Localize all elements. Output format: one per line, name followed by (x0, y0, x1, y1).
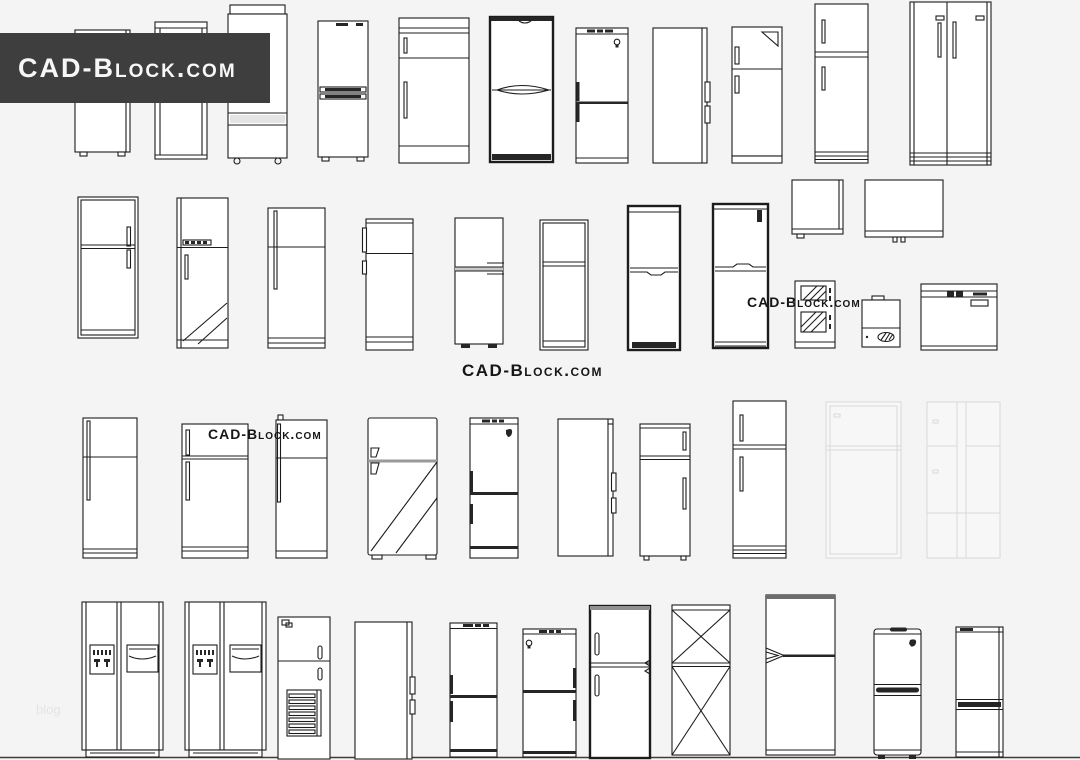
fridge-top-freezer-folded-corner (732, 27, 782, 163)
fridge-two-box-thick (590, 606, 650, 758)
watermark-row2-right: CAD-Block.com (747, 294, 861, 310)
wide-box-fridge (865, 180, 943, 242)
fridge-side-view-hinged (558, 419, 616, 556)
fridge-double-frame (540, 220, 588, 350)
faint-top-freezer (826, 402, 901, 558)
fridge-side-view-tall (355, 622, 415, 759)
chest-freezer (921, 284, 997, 350)
fridge-grille-left-handles (450, 623, 497, 757)
fridge-grille-bulb-bottom-freezer (523, 629, 576, 757)
fridge-bottom-freezer-bars (318, 21, 368, 161)
fridge-left-tab-handles (363, 219, 414, 350)
fridge-single-door-band (399, 18, 469, 163)
fridge-long-handle-top-freezer (268, 208, 325, 348)
side-by-side-dispenser-b (185, 602, 266, 757)
fridge-thick-notch-divider (628, 206, 680, 350)
fridge-side-by-side-top (910, 2, 991, 165)
fridge-grille-bird-bottom-freezer (470, 418, 518, 558)
fridge-side-view-panel (653, 28, 710, 163)
fridge-gray-divider (455, 218, 504, 348)
hatched-panel-unit (795, 281, 835, 348)
site-logo-text: CAD-Block.com (18, 53, 237, 84)
blog-link[interactable]: blog (36, 702, 61, 717)
cad-blocks-preview-page: CAD-Block.com CAD-Block.com CAD-Block.co… (0, 0, 1080, 760)
fridge-dark-band-bottom-freezer (956, 627, 1003, 757)
fridge-striped-base (733, 401, 786, 558)
fridge-louver-grille (278, 617, 330, 759)
compressor-unit (862, 296, 900, 347)
fridge-grille-bulb (576, 28, 628, 163)
mini-box-fridge (792, 180, 843, 238)
fridge-curved-band (874, 628, 921, 760)
fridge-two-handle-top-freezer (182, 424, 248, 558)
fridge-double-border-top-freezer (78, 197, 138, 338)
site-logo-banner[interactable]: CAD-Block.com (0, 33, 270, 103)
watermark-center: CAD-Block.com (462, 361, 603, 381)
fridge-long-handle-a (83, 418, 137, 558)
fridge-open-door-diagonals (368, 418, 437, 559)
fridge-x-brace (672, 605, 730, 755)
fridge-thick-tall (713, 204, 768, 348)
fridge-top-freezer-feet (640, 424, 690, 560)
faint-four-door (927, 402, 1000, 558)
fridge-diagonal-door (177, 198, 228, 348)
watermark-row3-left: CAD-Block.com (208, 426, 322, 442)
fridge-top-freezer-striped-base (815, 4, 868, 163)
fridge-dark-outline-curved (490, 17, 553, 162)
fridge-arrow-handle (766, 595, 835, 755)
side-by-side-dispenser-a (82, 602, 163, 757)
